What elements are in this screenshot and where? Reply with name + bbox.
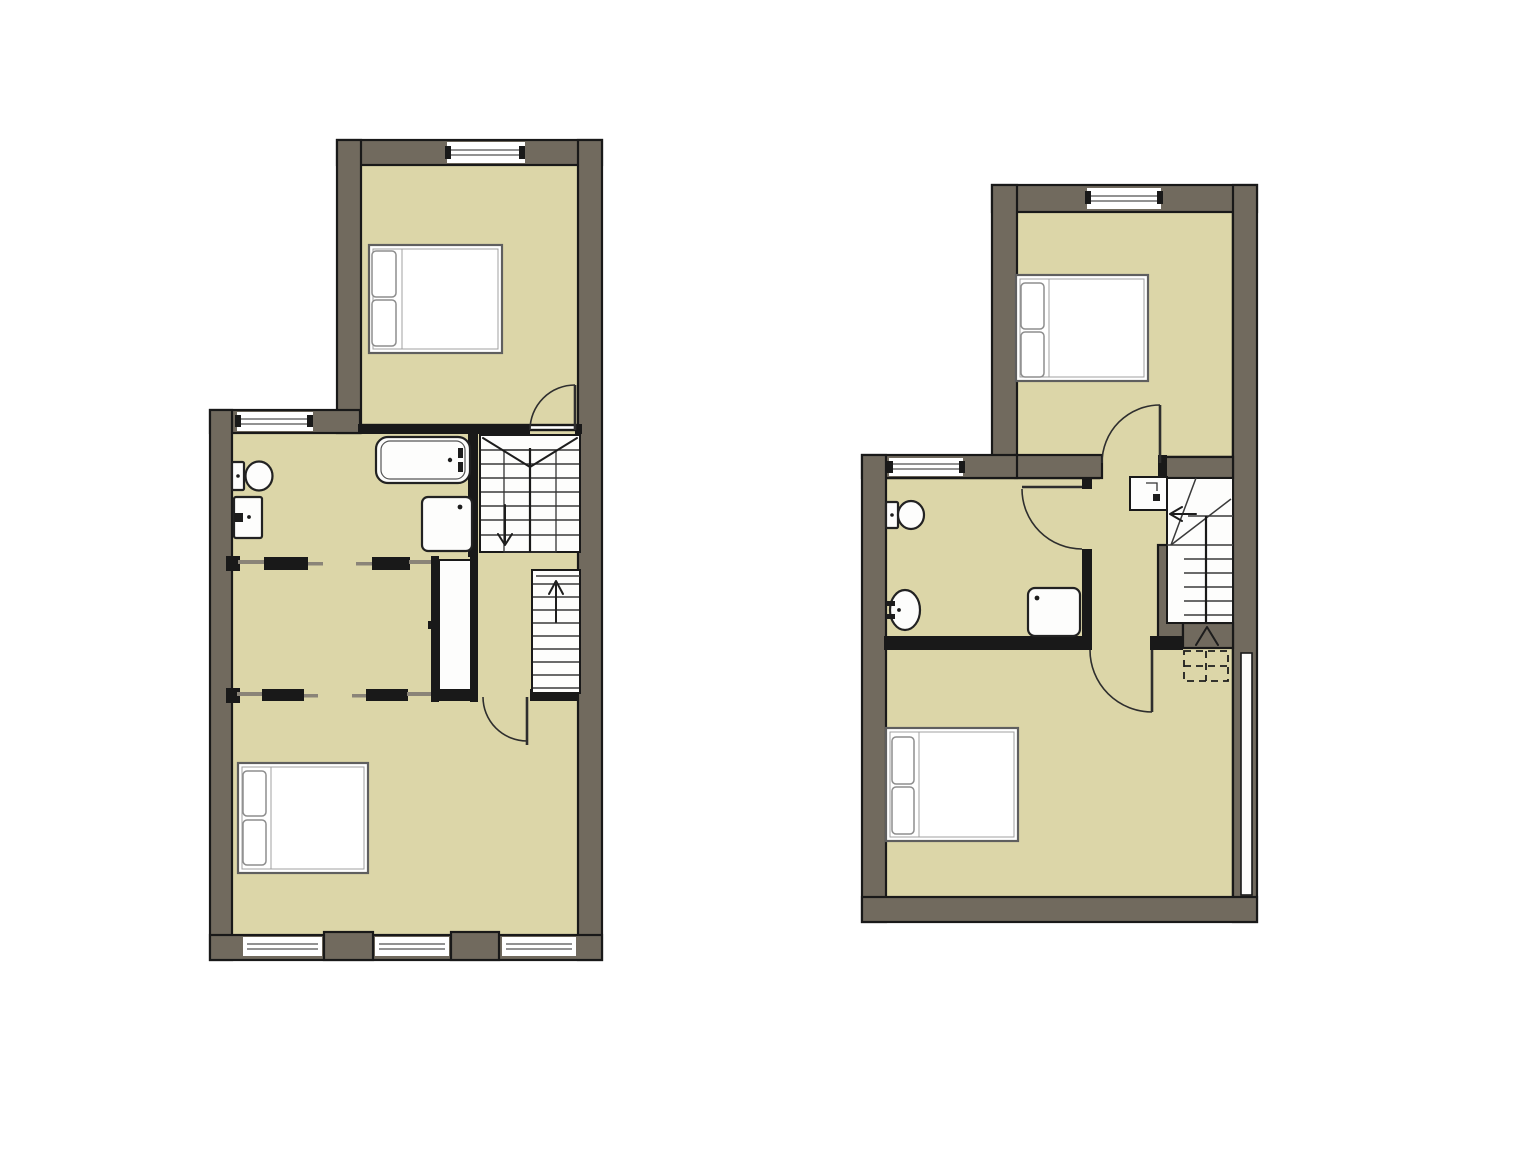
door-track bbox=[304, 694, 318, 698]
double-bed bbox=[369, 245, 502, 353]
window-jamb bbox=[1157, 191, 1163, 204]
wall-segment bbox=[1150, 636, 1183, 650]
wall-bedroom-bathroom bbox=[358, 424, 530, 434]
bathtub bbox=[376, 437, 470, 483]
double-bed bbox=[886, 728, 1018, 841]
closet-knob bbox=[428, 621, 436, 629]
window-pier bbox=[451, 932, 499, 960]
window-jamb bbox=[235, 415, 241, 427]
window-jamb bbox=[307, 415, 313, 427]
window bbox=[375, 937, 449, 956]
pillow bbox=[1021, 332, 1044, 377]
wall-bathroom-bedroom bbox=[884, 636, 1092, 650]
shower-tray bbox=[422, 497, 472, 551]
sliding-door-panel bbox=[264, 557, 308, 570]
double-bed bbox=[1016, 275, 1148, 381]
door-track bbox=[238, 560, 266, 564]
sliding-door-panel bbox=[262, 689, 304, 701]
pillow bbox=[243, 820, 266, 865]
toilet bbox=[232, 462, 273, 491]
floor-plan-right bbox=[862, 185, 1257, 922]
window bbox=[445, 142, 525, 163]
wall-recess-strip bbox=[1241, 653, 1252, 895]
floor-plans-canvas bbox=[0, 0, 1536, 1152]
door-track bbox=[407, 692, 432, 696]
window bbox=[502, 937, 576, 956]
floor-plan-page bbox=[0, 0, 1536, 1152]
window-jamb bbox=[519, 146, 525, 159]
window-glass bbox=[237, 412, 313, 431]
window-jamb bbox=[1085, 191, 1091, 204]
pillow bbox=[372, 251, 396, 297]
wall-left-upper bbox=[992, 185, 1017, 457]
pillow bbox=[243, 771, 266, 816]
pillow bbox=[372, 300, 396, 346]
window bbox=[887, 458, 965, 476]
cupboard-knob bbox=[1153, 494, 1160, 501]
wall-bathroom-right-upper bbox=[1082, 478, 1092, 489]
window-glass bbox=[447, 142, 525, 163]
wall-bathroom-right bbox=[1082, 549, 1092, 640]
double-bed bbox=[238, 763, 368, 873]
staircase-lower bbox=[532, 570, 580, 693]
door-track bbox=[352, 694, 366, 698]
wall-left-lower bbox=[862, 455, 886, 922]
window-glass bbox=[1087, 188, 1161, 209]
wall-stair-top bbox=[1165, 457, 1233, 478]
wall-block bbox=[226, 556, 240, 571]
washbasin bbox=[234, 497, 262, 538]
window bbox=[1085, 188, 1163, 209]
window-jamb bbox=[959, 461, 965, 473]
window bbox=[235, 412, 313, 431]
door-track bbox=[308, 562, 323, 566]
window-glass bbox=[375, 937, 449, 956]
door-track bbox=[237, 692, 264, 696]
window-glass bbox=[889, 458, 963, 476]
sliding-door-panel bbox=[366, 689, 408, 701]
toilet bbox=[886, 501, 924, 529]
wall-left-upper bbox=[337, 140, 361, 433]
wall-right bbox=[578, 140, 602, 960]
window-glass bbox=[243, 937, 322, 956]
wall-segment bbox=[431, 689, 478, 701]
wall-left-lower bbox=[210, 410, 232, 960]
shower-tray bbox=[1028, 588, 1080, 636]
pillow bbox=[892, 787, 914, 834]
built-in-closet bbox=[439, 560, 471, 692]
window-glass bbox=[502, 937, 576, 956]
window bbox=[243, 937, 322, 956]
window-pier bbox=[324, 932, 373, 960]
window-jamb bbox=[445, 146, 451, 159]
window-jamb bbox=[887, 461, 893, 473]
pillow bbox=[892, 737, 914, 784]
wall-bottom bbox=[862, 897, 1257, 922]
floor-plan-left bbox=[210, 140, 602, 960]
cupboard bbox=[1130, 477, 1167, 510]
sliding-door-panel bbox=[372, 557, 410, 570]
pillow bbox=[1021, 283, 1044, 329]
staircase-upper bbox=[480, 435, 580, 552]
door-track bbox=[356, 562, 373, 566]
wall-bedroom-bottom-edge bbox=[1015, 455, 1102, 478]
